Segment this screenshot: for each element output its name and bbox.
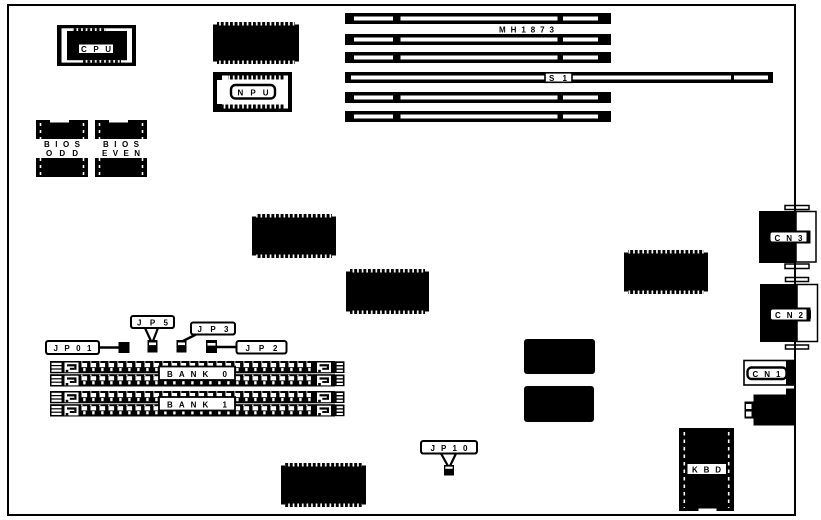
svg-text:CN2: CN2 bbox=[775, 311, 804, 320]
svg-text:ODD: ODD bbox=[46, 149, 78, 158]
svg-text:NPU: NPU bbox=[238, 88, 269, 97]
svg-text:BIOS: BIOS bbox=[44, 140, 81, 149]
svg-text:CN3: CN3 bbox=[775, 234, 804, 243]
svg-text:CPU: CPU bbox=[81, 45, 111, 54]
svg-text:BIOS: BIOS bbox=[103, 140, 140, 149]
svg-text:CN1: CN1 bbox=[753, 370, 782, 379]
svg-text:KBD: KBD bbox=[692, 466, 721, 475]
